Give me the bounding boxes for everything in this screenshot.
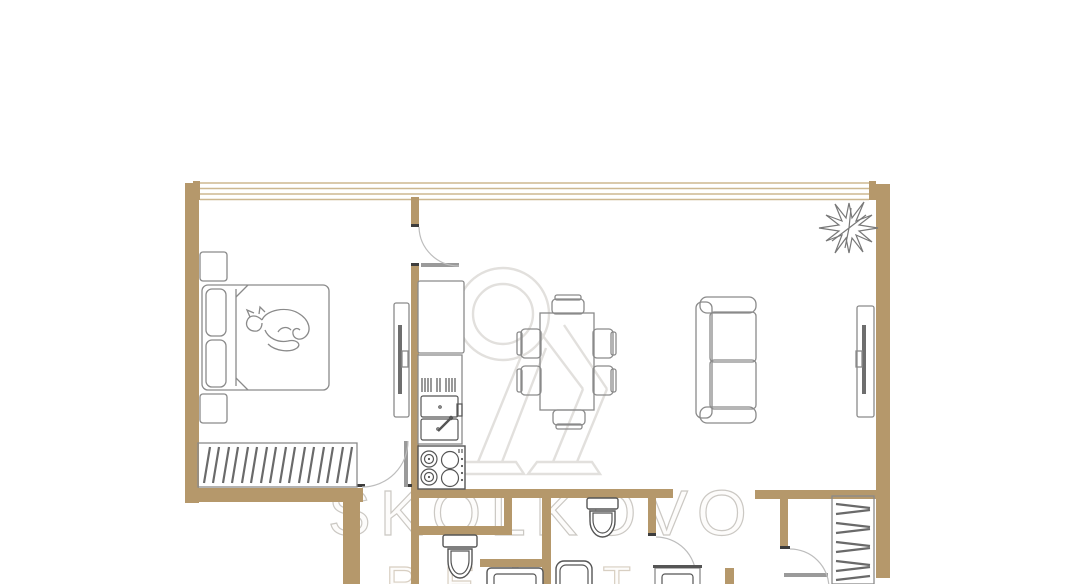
toilet-2 (587, 498, 618, 537)
living-tv-console (856, 306, 874, 417)
vanity-sink (653, 565, 702, 584)
bedroom-tv-console (394, 303, 409, 417)
nightstand-top (200, 252, 227, 281)
washing-machine (487, 568, 543, 584)
plant-icon (819, 202, 878, 253)
dining-chairs (517, 295, 616, 429)
dining-table (540, 313, 594, 410)
hall-closet (832, 496, 874, 584)
cooktop (418, 446, 465, 489)
nightstand-bottom (200, 394, 227, 423)
refrigerator (418, 281, 464, 353)
walls (185, 181, 890, 584)
double-bed (202, 285, 329, 390)
shower-tray (556, 561, 592, 584)
floor-plan-drawing (0, 0, 1080, 584)
floor-plan-page: SKOLKOVO REALTY (0, 0, 1080, 584)
bedroom-door (362, 441, 408, 487)
kitchen-counter (418, 355, 462, 444)
cat-icon (247, 307, 309, 351)
window-band (200, 183, 869, 200)
kitchen-door (419, 227, 459, 267)
bedroom-wardrobe (198, 443, 357, 487)
sofa (696, 297, 756, 423)
toilet-1 (443, 535, 477, 578)
closet-door (784, 549, 829, 584)
